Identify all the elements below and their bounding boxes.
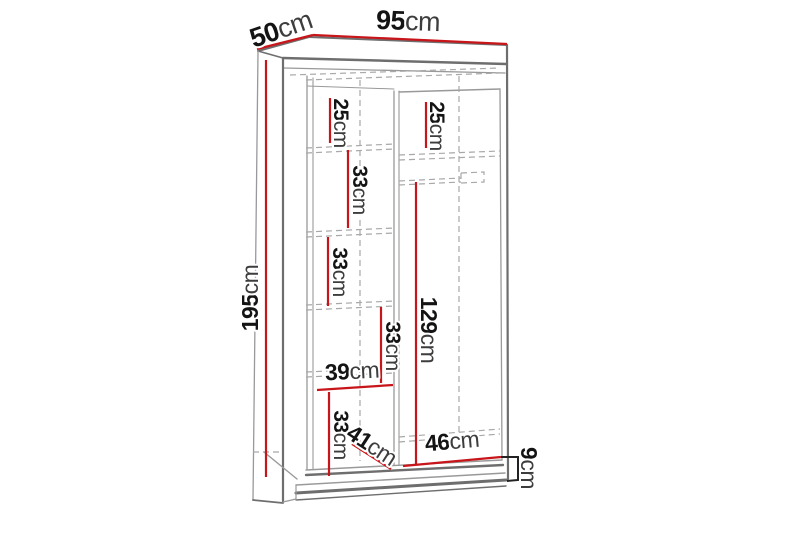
left-section-top-edge xyxy=(307,86,394,89)
left-shelf-3-front xyxy=(306,301,394,305)
dimension-label-top-depth: 50cm xyxy=(246,4,316,53)
dimension-label-left-shelf-gap-1: 33cm xyxy=(349,165,372,214)
right-top-shelf-front xyxy=(399,151,500,155)
dim-line-top-width xyxy=(313,35,507,44)
top-left-corner-edge xyxy=(258,51,283,58)
dimension-label-right-column-width: 46cm xyxy=(424,426,480,457)
interior-right-wall xyxy=(500,90,502,460)
left-plinth-notch xyxy=(264,452,297,479)
hanging-rail-front xyxy=(399,178,461,181)
dimension-label-left-shelf-gap-3: 33cm xyxy=(382,321,405,370)
top-front-edge xyxy=(283,58,506,64)
dim-bracket-plinth-height xyxy=(501,457,518,481)
right-section-top-edge xyxy=(399,89,500,92)
hanging-rail-bracket xyxy=(461,172,484,183)
dimension-label-hanging-space-height: 129cm xyxy=(416,297,442,364)
left-shelf-2-back xyxy=(306,233,394,237)
top-back-edge xyxy=(309,37,507,45)
left-shelf-1-back xyxy=(306,149,394,153)
dimension-label-left-shelf-gap-2: 33cm xyxy=(329,247,352,296)
dimension-lines xyxy=(257,35,518,481)
dim-line-left-column-width xyxy=(317,385,393,390)
dimension-label-left-top-section: 25cm xyxy=(330,98,353,147)
interior-dashed-lines xyxy=(253,68,500,461)
dimension-label-right-top-section: 25cm xyxy=(426,101,449,150)
plinth-front-band xyxy=(296,480,506,493)
furniture-dimension-diagram: 95cm 50cm 195cm 25cm 25cm 33cm 33cm 33cm… xyxy=(0,0,800,533)
left-bottom-edge xyxy=(253,500,283,503)
right-front-edge xyxy=(507,45,508,479)
dimension-label-plinth-height: 9cm xyxy=(516,447,542,489)
hanging-rail-back xyxy=(399,182,461,185)
plinth-bottom-edge xyxy=(296,486,506,500)
dimension-label-interior-depth: 41cm xyxy=(342,419,402,470)
wardrobe-diagram: 95cm 50cm 195cm 25cm 25cm 33cm 33cm 33cm… xyxy=(0,0,800,533)
plinth-left-connector xyxy=(283,499,296,502)
dimension-label-overall-height: 195cm xyxy=(237,265,263,332)
dimension-label-left-column-width: 39cm xyxy=(324,357,380,386)
dimension-label-top-width: 95cm xyxy=(375,5,440,37)
left-shelf-2-front xyxy=(306,228,394,232)
right-top-shelf-back xyxy=(399,156,500,160)
